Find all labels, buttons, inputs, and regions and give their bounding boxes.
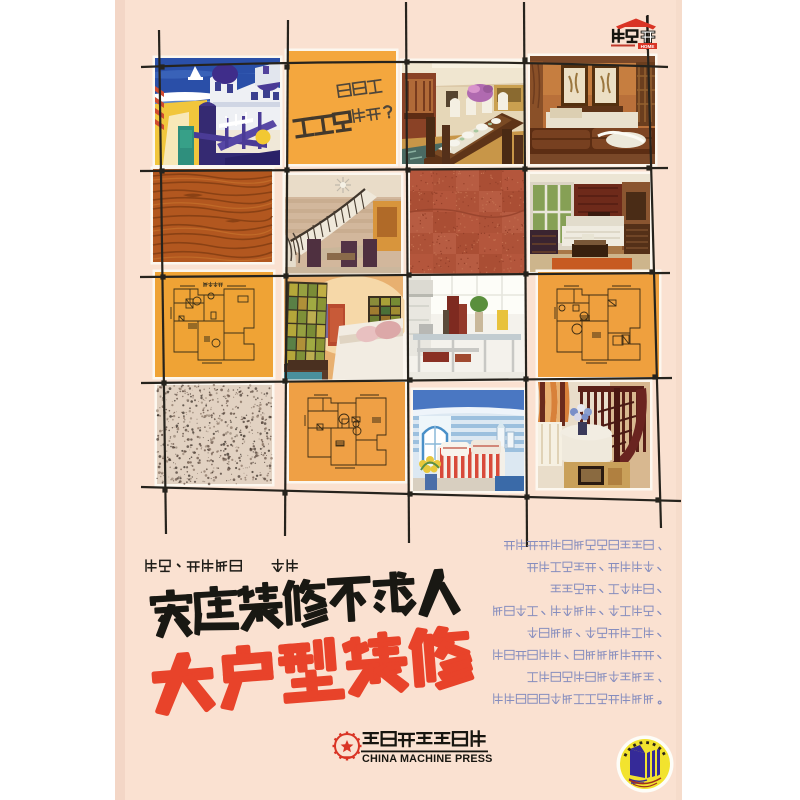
svg-text:HOME: HOME (641, 44, 655, 49)
svg-text:CHINA MACHINE PRESS: CHINA MACHINE PRESS (362, 753, 493, 765)
